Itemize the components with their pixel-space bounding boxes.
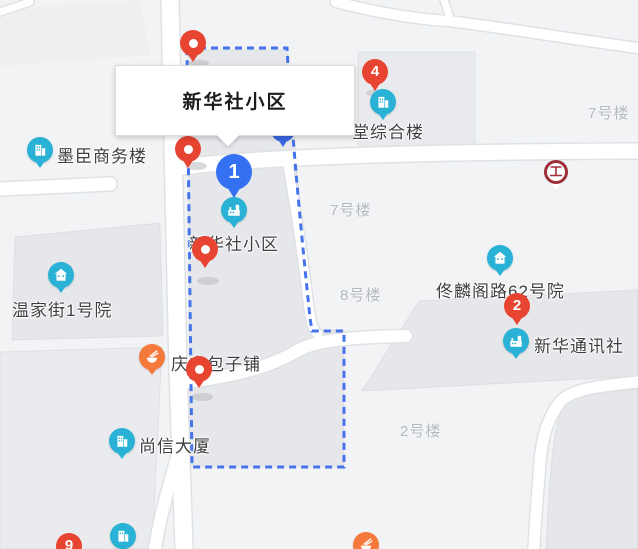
poi-label[interactable]: 温家街1号院	[12, 296, 112, 321]
poi-tail	[495, 269, 505, 276]
poi-label[interactable]: 堂综合楼	[352, 118, 424, 143]
poi-tail	[147, 368, 157, 375]
poi-tail	[378, 113, 388, 120]
poi-tail	[511, 352, 521, 359]
building-label: 7号楼	[588, 102, 629, 123]
poi-office-building-icon[interactable]	[109, 428, 135, 454]
poi-label[interactable]: 佟麟阁路62号院	[436, 277, 565, 302]
popup-title: 新华社小区	[116, 66, 354, 135]
building-label: 2号楼	[400, 420, 441, 441]
poi-factory-icon[interactable]	[503, 328, 529, 354]
bank-tail	[552, 184, 560, 190]
poi-house-icon[interactable]	[487, 245, 513, 271]
map-pin-red[interactable]	[186, 356, 212, 382]
poi-office-building-icon[interactable]	[110, 523, 136, 549]
pin-number: 9	[56, 533, 82, 549]
house-icon	[53, 267, 69, 283]
icbc-bank-icon[interactable]: 工	[544, 160, 568, 184]
restaurant-icon	[144, 349, 160, 365]
office-building-icon	[115, 528, 131, 544]
pin-tail	[180, 156, 196, 168]
building-label: 7号楼	[330, 199, 371, 220]
poi-tail	[117, 452, 127, 459]
map-pin-2[interactable]: 2	[504, 293, 530, 319]
restaurant-icon	[358, 537, 374, 549]
poi-tail	[35, 161, 45, 168]
poi-label[interactable]: 墨臣商务楼	[57, 142, 147, 167]
poi-tail	[229, 221, 239, 228]
poi-factory-icon[interactable]	[221, 197, 247, 223]
pin-tail	[191, 376, 207, 388]
pin-number: 1	[216, 154, 252, 190]
pin-tail	[276, 136, 290, 147]
office-building-icon	[375, 94, 391, 110]
map-pin-red[interactable]	[180, 30, 206, 56]
map-pin-4[interactable]: 4	[362, 59, 388, 85]
poi-label[interactable]: 尚信大厦	[139, 432, 211, 457]
poi-tail	[56, 286, 66, 293]
map-pin-red[interactable]	[175, 136, 201, 162]
office-building-icon	[32, 142, 48, 158]
pin-number: 2	[504, 293, 530, 319]
pin-dot	[189, 39, 198, 48]
pin-number: 4	[362, 59, 388, 85]
pin-dot	[195, 365, 204, 374]
poi-office-building-icon[interactable]	[370, 89, 396, 115]
office-building-icon	[114, 433, 130, 449]
factory-icon	[226, 202, 242, 218]
pin-dot	[184, 145, 193, 154]
poi-restaurant-icon[interactable]	[139, 344, 165, 370]
pin-dot	[201, 245, 210, 254]
pin-tail	[197, 256, 213, 268]
info-popup[interactable]: 新华社小区	[115, 65, 355, 136]
poi-label[interactable]: 庆丰包子铺	[171, 350, 261, 375]
map-pin-1[interactable]: 1	[216, 154, 252, 190]
map-pin-red[interactable]	[192, 236, 218, 262]
poi-label[interactable]: 新华通讯社	[534, 332, 624, 357]
map-canvas[interactable]: 7号楼 7号楼 8号楼 2号楼 墨臣商务楼 温家街1号院 尚信大厦 庆丰包子铺 …	[0, 0, 638, 549]
bank-glyph: 工	[547, 163, 565, 181]
house-icon	[492, 250, 508, 266]
pin-tail	[185, 50, 201, 62]
poi-house-icon[interactable]	[48, 262, 74, 288]
building-label: 8号楼	[340, 284, 381, 305]
poi-office-building-icon[interactable]	[27, 137, 53, 163]
factory-icon	[508, 333, 524, 349]
map-pin-9[interactable]: 9	[56, 533, 82, 549]
